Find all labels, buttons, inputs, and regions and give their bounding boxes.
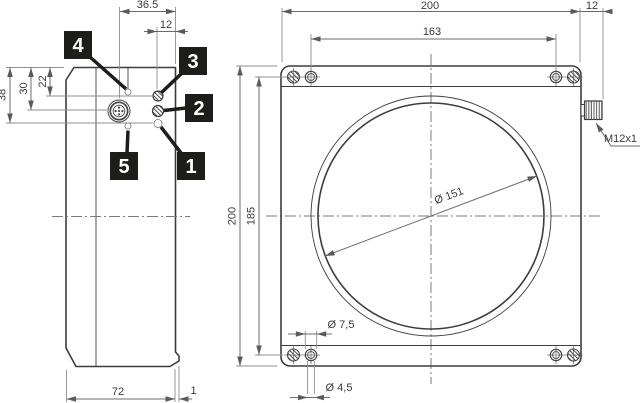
callout-4-number: 4 — [72, 35, 84, 57]
dim-38-label: 38 — [0, 89, 9, 101]
dim-lens-diameter-label: Ø 151 — [433, 185, 465, 207]
side-view: 36.5 12 38 30 22 72 1 4 3 2 1 5 — [0, 0, 213, 402]
callout-2-number: 2 — [193, 98, 204, 120]
dim-72-label: 72 — [112, 386, 124, 398]
dim-36-5-label: 36.5 — [137, 0, 158, 11]
dim-12-front-label: 12 — [586, 0, 598, 12]
hole-hatched-bottom-right — [568, 349, 580, 361]
dim-163-label: 163 — [423, 26, 441, 38]
dim-1-label: 1 — [190, 385, 196, 397]
dim-185-label: 185 — [246, 207, 258, 225]
callout-5-number: 5 — [118, 156, 129, 178]
dim-through-hole-label: Ø 4,5 — [326, 382, 353, 394]
callout-3-number: 3 — [187, 51, 198, 73]
led-indicator-bottom — [125, 123, 131, 129]
dim-22-label: 22 — [37, 75, 49, 87]
dim-12-side-label: 12 — [160, 19, 172, 31]
element-2-hatched — [153, 106, 164, 117]
front-view: 200 163 12 200 185 Ø 151 Ø 7,5 Ø 4,5 M12… — [227, 0, 640, 400]
connector-thread-label: M12x1 — [604, 133, 637, 145]
dim-200-left-label: 200 — [227, 207, 239, 225]
hole-hatched-bottom-left — [288, 349, 300, 361]
side-extension-lines — [6, 7, 179, 402]
dim-counterbore-label: Ø 7,5 — [328, 319, 355, 331]
m12-connector-side — [108, 100, 130, 122]
hole-hatched-top-right — [568, 71, 580, 83]
callouts: 4 3 2 1 5 — [64, 31, 213, 180]
technical-drawing-page: 36.5 12 38 30 22 72 1 4 3 2 1 5 — [0, 0, 640, 403]
callout-1-number: 1 — [185, 156, 196, 178]
dimension-drawing: 36.5 12 38 30 22 72 1 4 3 2 1 5 — [0, 0, 640, 403]
element-1-plain — [154, 120, 162, 128]
dim-200-top-label: 200 — [421, 0, 439, 12]
dim-30-label: 30 — [18, 82, 30, 94]
m12-connector-front — [581, 101, 602, 120]
hole-hatched-top-left — [288, 71, 300, 83]
led-indicator-top — [125, 89, 131, 95]
